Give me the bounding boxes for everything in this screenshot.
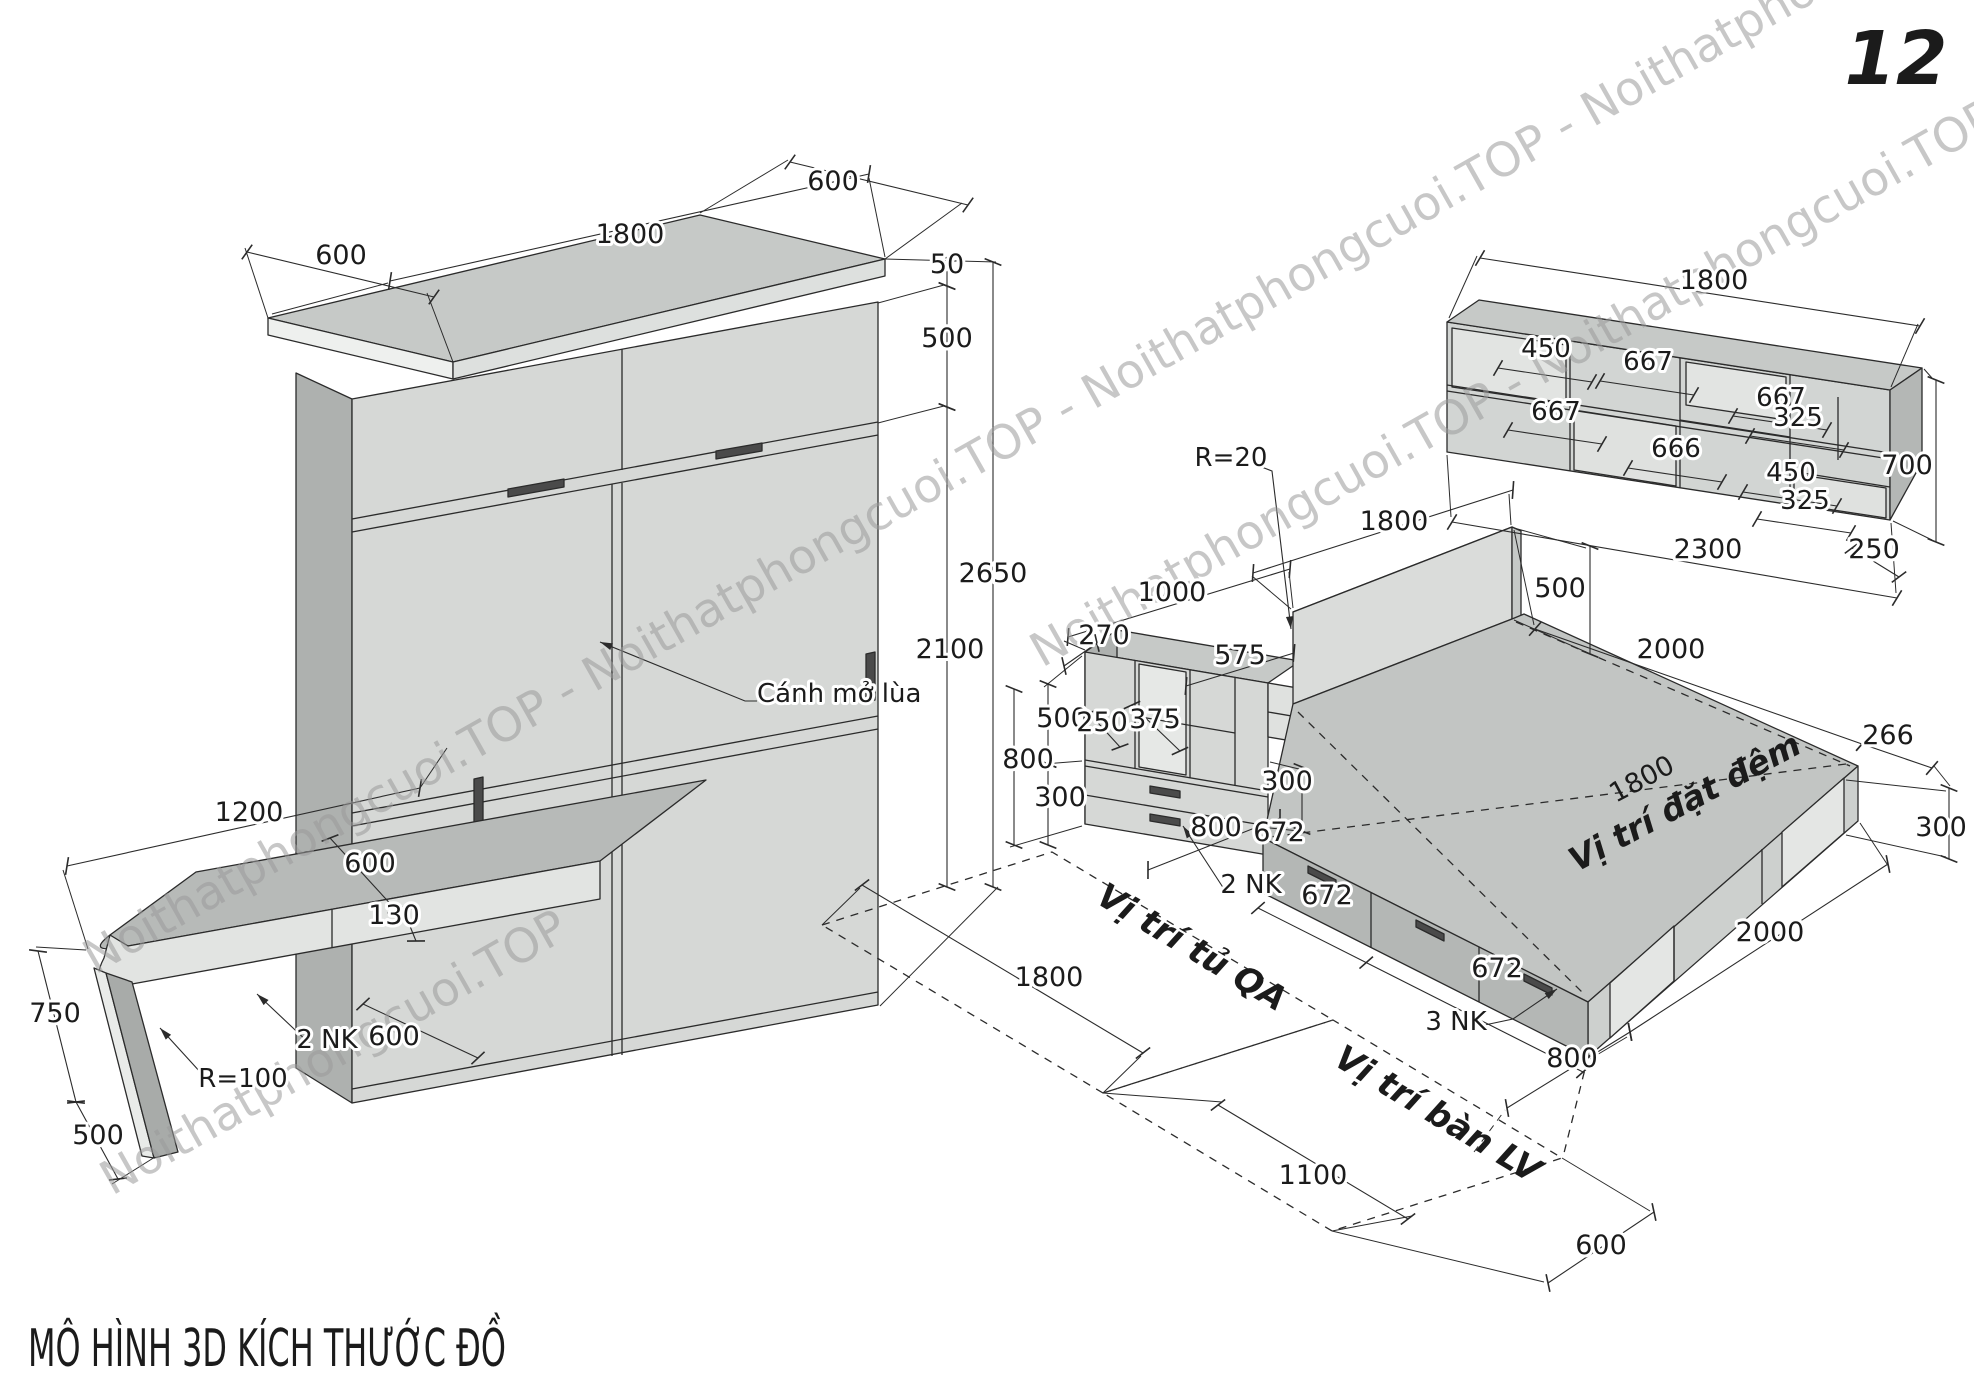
extension-line [878, 406, 944, 423]
label-qa-h800: 800 [1002, 744, 1054, 775]
label-shelf-c325a: 325 [1773, 403, 1823, 433]
label-desk-apron: 130 [368, 900, 420, 931]
label-shelf-c450a: 450 [1521, 334, 1571, 364]
label-bed-drawer1: 672 [1253, 817, 1305, 848]
label-qa-width: 1000 [1138, 577, 1207, 608]
label-qa-drawers: 2 NK [1220, 870, 1282, 900]
label-desk-depth: 600 [344, 848, 396, 879]
label-floor-width: 1800 [1015, 962, 1084, 993]
extension-line [1846, 780, 1946, 791]
extension-line [1860, 823, 1889, 867]
extension-line [1934, 766, 1950, 786]
label-desk-length: 1200 [215, 797, 284, 828]
extension-line [1332, 1231, 1544, 1282]
label-desk-height: 750 [29, 998, 81, 1029]
extension-line [1103, 1093, 1222, 1102]
label-desk-radius: R=100 [198, 1064, 287, 1094]
label-desk-drawers: 2 NK [296, 1025, 358, 1055]
extension-line [1514, 528, 1586, 548]
label-bed-drawer2: 672 [1301, 880, 1353, 911]
label-wardrobe-door: 2100 [916, 634, 985, 665]
label-wardrobe-depth_right: 600 [807, 166, 859, 197]
extension-line [878, 285, 944, 303]
label-bed-length2: 2000 [1736, 917, 1805, 948]
label-qa-c375: 375 [1129, 704, 1181, 735]
label-bed-headboard_h: 500 [1534, 573, 1586, 604]
label-desk-leg: 500 [72, 1120, 124, 1151]
label-bed-end: 266 [1862, 720, 1914, 751]
wallshelf-side [1890, 368, 1922, 520]
label-qa-depth: 270 [1078, 620, 1130, 651]
label-shelf-c450b: 450 [1766, 458, 1816, 488]
drawing-canvas: Noithatphongcuoi.TOP - Noithatphongcuoi.… [0, 0, 1974, 1400]
extension-line [880, 887, 998, 1006]
extension-line [245, 248, 268, 318]
label-qa-c250: 250 [1076, 707, 1128, 738]
page-title: MÔ HÌNH 3D KÍCH THƯỚC ĐỒ [28, 1312, 506, 1379]
label-shelf-c666: 666 [1651, 434, 1701, 464]
label-qa-radius: R=20 [1195, 443, 1268, 473]
wardrobe-side-face [296, 373, 352, 1103]
label-floor-lv: Vị trí bàn LV [1328, 1037, 1551, 1193]
label-shelf-depth: 250 [1848, 534, 1900, 565]
extension-line [1509, 494, 1511, 525]
label-shelf-width: 1800 [1680, 265, 1749, 296]
extension-line [869, 178, 885, 257]
label-wardrobe-height: 2650 [959, 558, 1028, 589]
label-shelf-c667a: 667 [1623, 347, 1673, 377]
label-qa-floor: 800 [1190, 812, 1242, 843]
extension-line [1562, 1158, 1650, 1211]
label-bed-foot_depth: 600 [1575, 1230, 1627, 1261]
label-bed-length: 2000 [1637, 634, 1706, 665]
label-bed-foot: 800 [1546, 1043, 1598, 1074]
label-qa-d300: 300 [1261, 766, 1313, 797]
wardrobe-handle [474, 777, 483, 827]
label-bed-drawer3: 672 [1471, 953, 1523, 984]
label-wardrobe-depth_left: 600 [315, 240, 367, 271]
extension-line [1447, 455, 1451, 517]
label-wardrobe-width: 1800 [596, 219, 665, 250]
label-shelf-c667b: 667 [1531, 397, 1581, 427]
label-wardrobe-upper: 500 [921, 323, 973, 354]
label-floor-depth: 1100 [1279, 1160, 1348, 1191]
iso-furniture-drawing: Noithatphongcuoi.TOP - Noithatphongcuoi.… [0, 0, 1974, 1400]
label-bed-side: 300 [1915, 812, 1967, 843]
label-shelf-height: 700 [1881, 450, 1933, 481]
label-bed-drawers: 3 NK [1425, 1007, 1487, 1037]
label-shelf-c325b: 325 [1780, 486, 1830, 516]
label-bed-headboard_w: 1800 [1360, 506, 1429, 537]
label-wardrobe-top: 50 [930, 249, 964, 280]
label-desk-gap: 600 [368, 1021, 420, 1052]
extension-line [700, 160, 788, 213]
label-wardrobe-note: Cánh mở lùa [757, 679, 921, 709]
label-shelf-total: 2300 [1674, 534, 1743, 565]
page-number: 12 [1845, 16, 1948, 102]
label-qa-h300: 300 [1034, 782, 1086, 813]
label-qa-shelf: 575 [1214, 640, 1266, 671]
